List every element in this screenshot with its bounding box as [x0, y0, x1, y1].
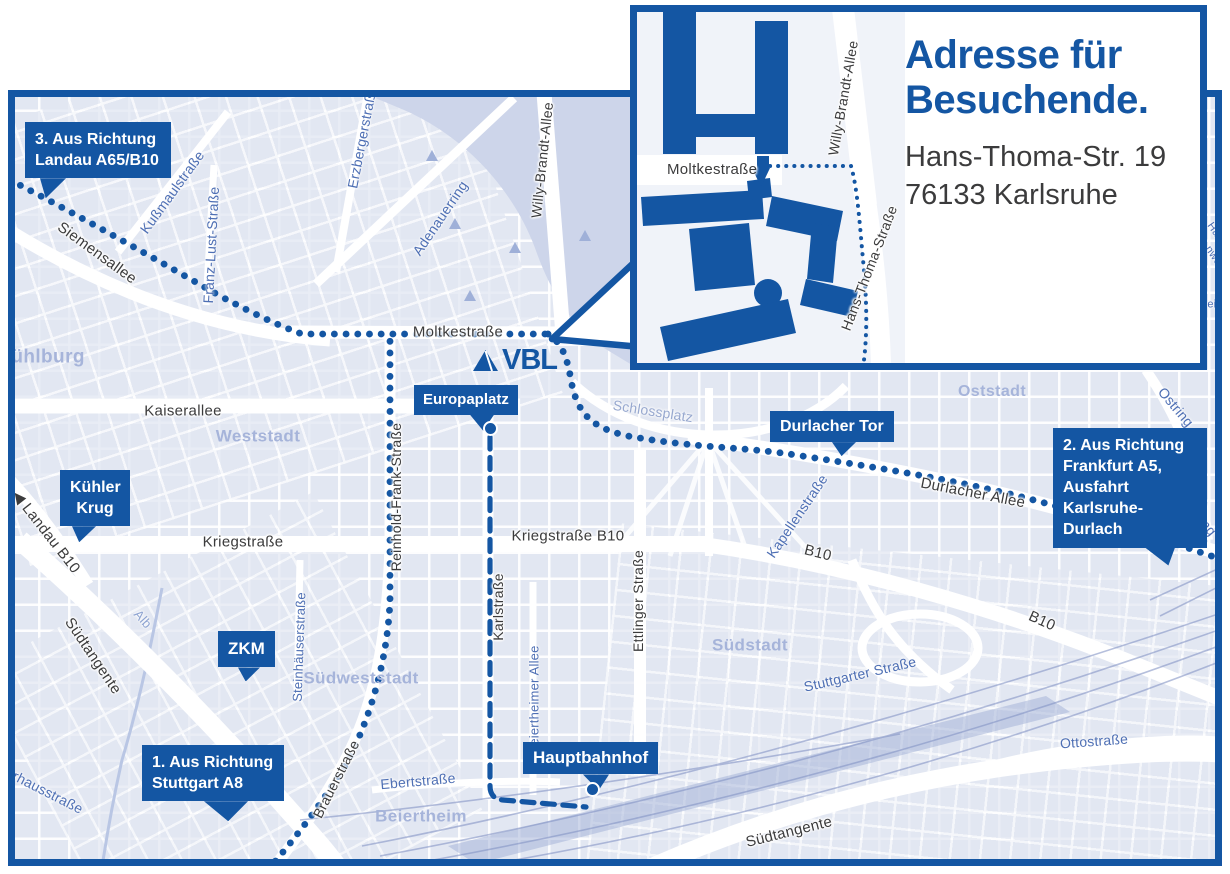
street-label-kriegstrasse-b10: Kriegstraße B10	[512, 529, 625, 544]
district-label-suedweststadt: Südweststadt	[303, 670, 418, 687]
callout-zkm: ZKM	[218, 631, 275, 667]
europaplatz-marker	[483, 421, 498, 436]
callout-route-2-frankfurt: 2. Aus Richtung Frankfurt A5, Ausfahrt K…	[1053, 428, 1207, 548]
callout-kuehler-krug: Kühler Krug	[60, 470, 130, 526]
street-label-beiertheimer-allee: Beiertheimer Allee	[528, 645, 541, 754]
inset-title: Adresse für Besuchende.	[905, 33, 1205, 123]
address-line-1: Hans-Thoma-Str. 19	[905, 138, 1205, 176]
street-label-karlstrasse: Karlstraße	[491, 573, 505, 641]
street-label-kaiserallee: Kaiserallee	[144, 404, 222, 419]
district-label-weststadt: Weststadt	[216, 428, 301, 445]
visitor-map: Siemensallee Moltkestraße Kaiserallee Kr…	[0, 0, 1230, 874]
hauptbahnhof-marker	[585, 782, 600, 797]
vbl-buildings	[641, 12, 858, 361]
vbl-logo: VBL	[472, 344, 557, 377]
inset-street-label-moltkestrasse: Moltkestraße	[667, 162, 757, 177]
callout-europaplatz: Europaplatz	[414, 385, 518, 415]
district-label-suedstadt: Südstadt	[712, 637, 788, 654]
district-label-beiertheim: Beiertheim	[375, 808, 467, 825]
callout-hauptbahnhof: Hauptbahnhof	[523, 742, 658, 774]
callout-route-1-stuttgart: 1. Aus Richtung Stuttgart A8	[142, 745, 284, 801]
callout-route-3-landau: 3. Aus Richtung Landau A65/B10	[25, 122, 171, 178]
district-label-oststadt: Oststadt	[958, 384, 1026, 400]
district-label-muehlburg: Mühlburg	[8, 348, 85, 367]
street-label-reinhold-frank-strasse: Reinhold-Frank-Straße	[389, 423, 403, 572]
street-label-ettlinger-strasse: Ettlinger Straße	[631, 550, 645, 652]
street-label-kriegstrasse: Kriegstraße	[203, 535, 284, 550]
vbl-logo-triangle-icon	[472, 349, 499, 372]
callout-durlacher-tor: Durlacher Tor	[770, 411, 894, 442]
street-label-moltkestrasse: Moltkestraße	[413, 325, 503, 340]
vbl-logo-text: VBL	[502, 344, 557, 377]
address-line-2: 76133 Karlsruhe	[905, 176, 1205, 214]
street-label-fragment-ein: ein	[1207, 300, 1222, 311]
inset-address: Hans-Thoma-Str. 19 76133 Karlsruhe	[905, 138, 1205, 215]
